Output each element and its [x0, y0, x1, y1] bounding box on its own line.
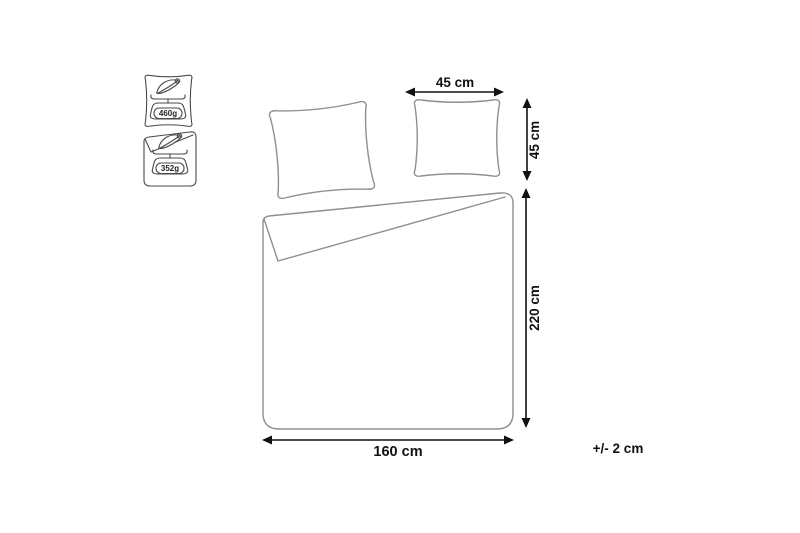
pillow-right [414, 100, 499, 177]
pillow-left [269, 101, 375, 199]
dim-pillow-height: 45 cm [523, 98, 543, 181]
duvet-weight-badge: 352g [144, 132, 196, 186]
duvet-length-label: 220 cm [527, 285, 542, 331]
duvet-width-label: 160 cm [373, 444, 422, 460]
bedding-dimensions-diagram: 460g 352g 45 cm 45 cm [0, 0, 800, 533]
arrow-left-head [262, 436, 272, 445]
arrow-down-head [522, 418, 531, 428]
dim-duvet-length: 220 cm [522, 188, 543, 428]
arrow-down-head [523, 171, 532, 181]
dim-duvet-width: 160 cm [262, 436, 514, 461]
arrow-up-head [522, 188, 531, 198]
duvet [263, 193, 513, 429]
arrow-right-head [504, 436, 514, 445]
arrow-left-head [405, 88, 415, 97]
pillow-height-label: 45 cm [527, 121, 542, 159]
tolerance-note: +/- 2 cm [593, 441, 644, 456]
pillow-width-label: 45 cm [436, 75, 474, 90]
duvet-weight-label: 352g [161, 164, 179, 173]
arrow-up-head [523, 98, 532, 108]
pillow-weight-badge: 460g [145, 75, 192, 126]
pillow-weight-label: 460g [159, 109, 177, 118]
dim-pillow-width: 45 cm [405, 75, 504, 97]
arrow-right-head [494, 88, 504, 97]
diagram-canvas: 460g 352g 45 cm 45 cm [0, 0, 800, 533]
duvet-outline [263, 193, 513, 429]
